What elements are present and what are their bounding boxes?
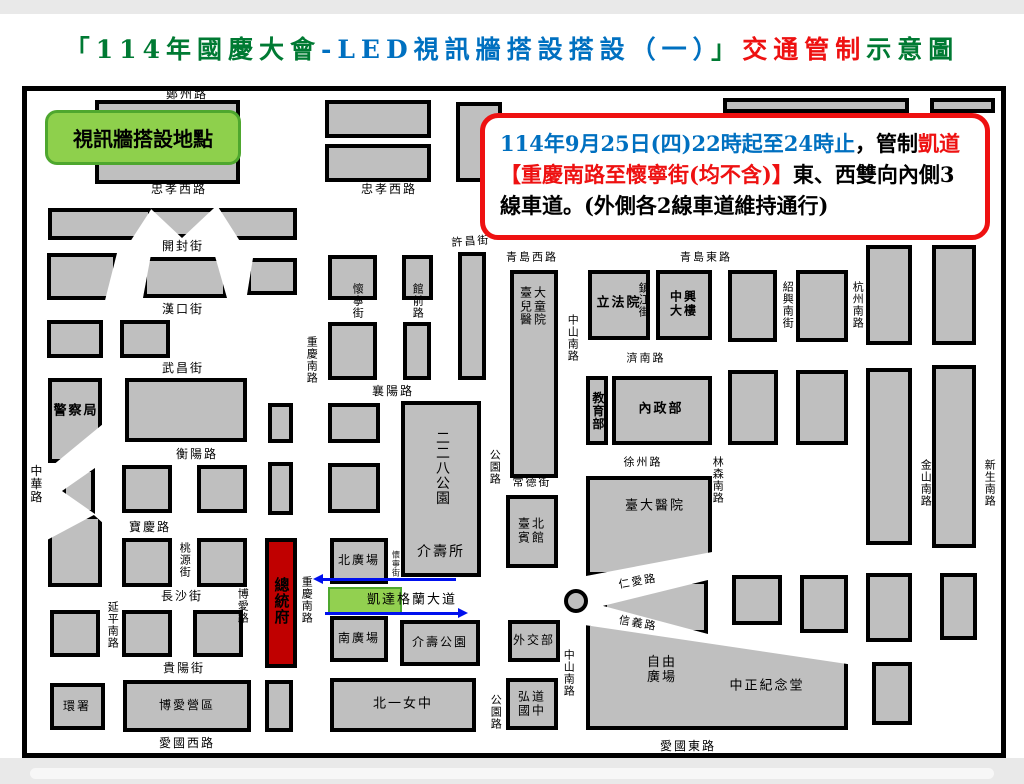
- city-block: [122, 465, 172, 513]
- traffic-direction-arrow: [325, 612, 459, 615]
- city-block: [48, 515, 102, 587]
- title-segment: 」: [711, 35, 742, 64]
- city-block: [47, 253, 117, 300]
- city-block: [268, 462, 293, 515]
- city-block: [328, 463, 380, 513]
- city-block: [796, 370, 848, 445]
- city-block: [612, 376, 712, 445]
- street-label: 忠孝西路: [151, 183, 207, 197]
- city-block: [197, 465, 247, 513]
- notice-segment: 線車道。(外側各2線車道維持通行): [500, 193, 828, 218]
- street-label: 延平南路: [106, 601, 119, 649]
- city-block: [268, 403, 293, 443]
- city-block: [265, 680, 293, 732]
- notice-line: 【重慶南路至懷寧街(均不含)】東、西雙向內側3: [500, 160, 977, 191]
- city-block: [328, 403, 380, 443]
- street-label: 徐州路: [624, 457, 663, 470]
- led-wall-location-legend: 視訊牆搭設地點: [45, 110, 241, 165]
- street-label: 中山南路: [562, 649, 575, 697]
- city-block: [325, 144, 431, 182]
- city-block: [328, 322, 377, 380]
- street-label: 杭州南路: [851, 281, 864, 329]
- city-block: [866, 368, 912, 545]
- street-label: 濟南路: [627, 353, 666, 366]
- city-block: [586, 376, 608, 445]
- city-block: [588, 270, 650, 340]
- notice-segment: 凱道: [918, 131, 960, 156]
- city-block: [328, 255, 377, 300]
- city-block: [247, 258, 297, 295]
- street-label: 公園路: [489, 694, 502, 730]
- legend-label: 視訊牆搭設地點: [73, 123, 213, 152]
- city-block: [48, 208, 152, 240]
- city-block: [47, 320, 103, 358]
- city-block: [728, 270, 777, 342]
- city-block: [197, 538, 247, 587]
- street-label: 長沙街: [161, 590, 203, 604]
- street-label: 武昌街: [162, 362, 204, 376]
- traffic-direction-arrowhead: [458, 608, 468, 618]
- page-edge-bottom: [0, 758, 1024, 784]
- city-block: [510, 270, 558, 478]
- city-block: [50, 610, 100, 657]
- street-label: 金山南路: [919, 459, 932, 507]
- street-label: 仁愛路: [618, 572, 659, 591]
- traffic-control-notice: 114年9月25日(四)22時起至24時止，管制凱道【重慶南路至懷寧街(均不含)…: [480, 113, 990, 240]
- city-block: [193, 610, 243, 657]
- city-block: [603, 580, 708, 634]
- city-block: [728, 370, 778, 445]
- city-block: [50, 683, 105, 730]
- street-label: 常德街: [513, 477, 552, 490]
- page-edge-top: [0, 0, 1024, 14]
- city-block: [401, 401, 481, 577]
- street-label: 重慶南路: [300, 576, 313, 624]
- street-label: 桃源街: [178, 542, 191, 578]
- kaidao-led-zone: [328, 587, 402, 615]
- east-gate-roundabout-island: [564, 589, 588, 613]
- street-label: 許昌街: [451, 234, 491, 249]
- traffic-direction-arrowhead: [313, 574, 323, 584]
- city-block: [125, 378, 247, 442]
- city-block: [48, 378, 102, 463]
- city-block: [586, 622, 848, 730]
- street-label: 中山南路: [566, 314, 579, 362]
- city-block: [796, 270, 848, 342]
- title-segment: 交通管制: [742, 35, 866, 64]
- street-label: 懷寧街: [391, 551, 400, 578]
- city-block: [800, 575, 848, 633]
- city-block: [122, 538, 172, 587]
- notice-line: 114年9月25日(四)22時起至24時止，管制凱道: [500, 129, 977, 160]
- city-block: [330, 678, 476, 732]
- page-edge-scroll-hint: [30, 768, 994, 779]
- street-label: 貴陽街: [163, 662, 205, 676]
- street-label: 紹興南街: [781, 281, 794, 329]
- street-label: 公園路: [488, 449, 501, 485]
- city-block: [506, 495, 558, 568]
- title-segment: 「114年國慶大會: [65, 35, 321, 64]
- street-label: 襄陽路: [372, 385, 414, 399]
- street-label: 重慶南路: [305, 336, 318, 384]
- street-label: 開封街: [162, 240, 204, 254]
- city-block: [732, 575, 782, 625]
- title-segment: -LED視訊牆搭設搭設（一）: [321, 35, 711, 64]
- street-label: 漢口街: [162, 303, 204, 317]
- notice-line: 線車道。(外側各2線車道維持通行): [500, 191, 977, 222]
- street-label: 寶慶路: [129, 521, 171, 535]
- traffic-direction-arrow: [322, 578, 456, 581]
- city-block: [930, 98, 995, 113]
- street-label: 愛國東路: [660, 740, 716, 754]
- notice-segment: 【重慶南路至懷寧街(均不含)】: [500, 162, 793, 187]
- street-label: 青島東路: [680, 252, 732, 265]
- city-block: [212, 208, 297, 240]
- notice-segment: ，管制: [855, 131, 918, 156]
- city-block: [506, 678, 558, 730]
- city-block: [508, 620, 560, 662]
- street-label: 愛國西路: [159, 737, 215, 751]
- title-segment: 示意圖: [866, 35, 959, 64]
- notice-segment: 114年9月25日(四)22時起至24時止: [500, 131, 855, 156]
- city-block: [120, 320, 170, 358]
- page-title: 「114年國慶大會-LED視訊牆搭設搭設（一）」交通管制示意圖: [0, 30, 1024, 66]
- street-label: 新生南路: [983, 459, 996, 507]
- city-block: [458, 252, 486, 380]
- city-block: [400, 620, 480, 666]
- city-block: [866, 245, 912, 345]
- presidential-office-block: [265, 538, 297, 668]
- city-block: [656, 270, 712, 340]
- city-block: [940, 573, 977, 640]
- city-block: [330, 616, 388, 662]
- city-block: [143, 257, 227, 298]
- city-block: [123, 680, 251, 732]
- street-label: 林森南路: [711, 456, 724, 504]
- city-block: [723, 98, 909, 113]
- city-block: [62, 468, 95, 514]
- city-block: [932, 245, 976, 345]
- city-block: [403, 322, 431, 380]
- city-block: [586, 476, 712, 576]
- city-block: [872, 662, 912, 725]
- street-label: 青島西路: [506, 252, 558, 265]
- city-block: [932, 365, 976, 548]
- street-label: 忠孝西路: [361, 183, 417, 197]
- city-block: [150, 208, 214, 238]
- city-block: [122, 610, 172, 657]
- city-block: [402, 255, 433, 300]
- street-label: 中華路: [28, 465, 42, 504]
- notice-segment: 東、西雙向內側3: [793, 162, 955, 187]
- city-block: [325, 100, 431, 138]
- city-block: [866, 573, 912, 642]
- street-label: 衡陽路: [176, 448, 218, 462]
